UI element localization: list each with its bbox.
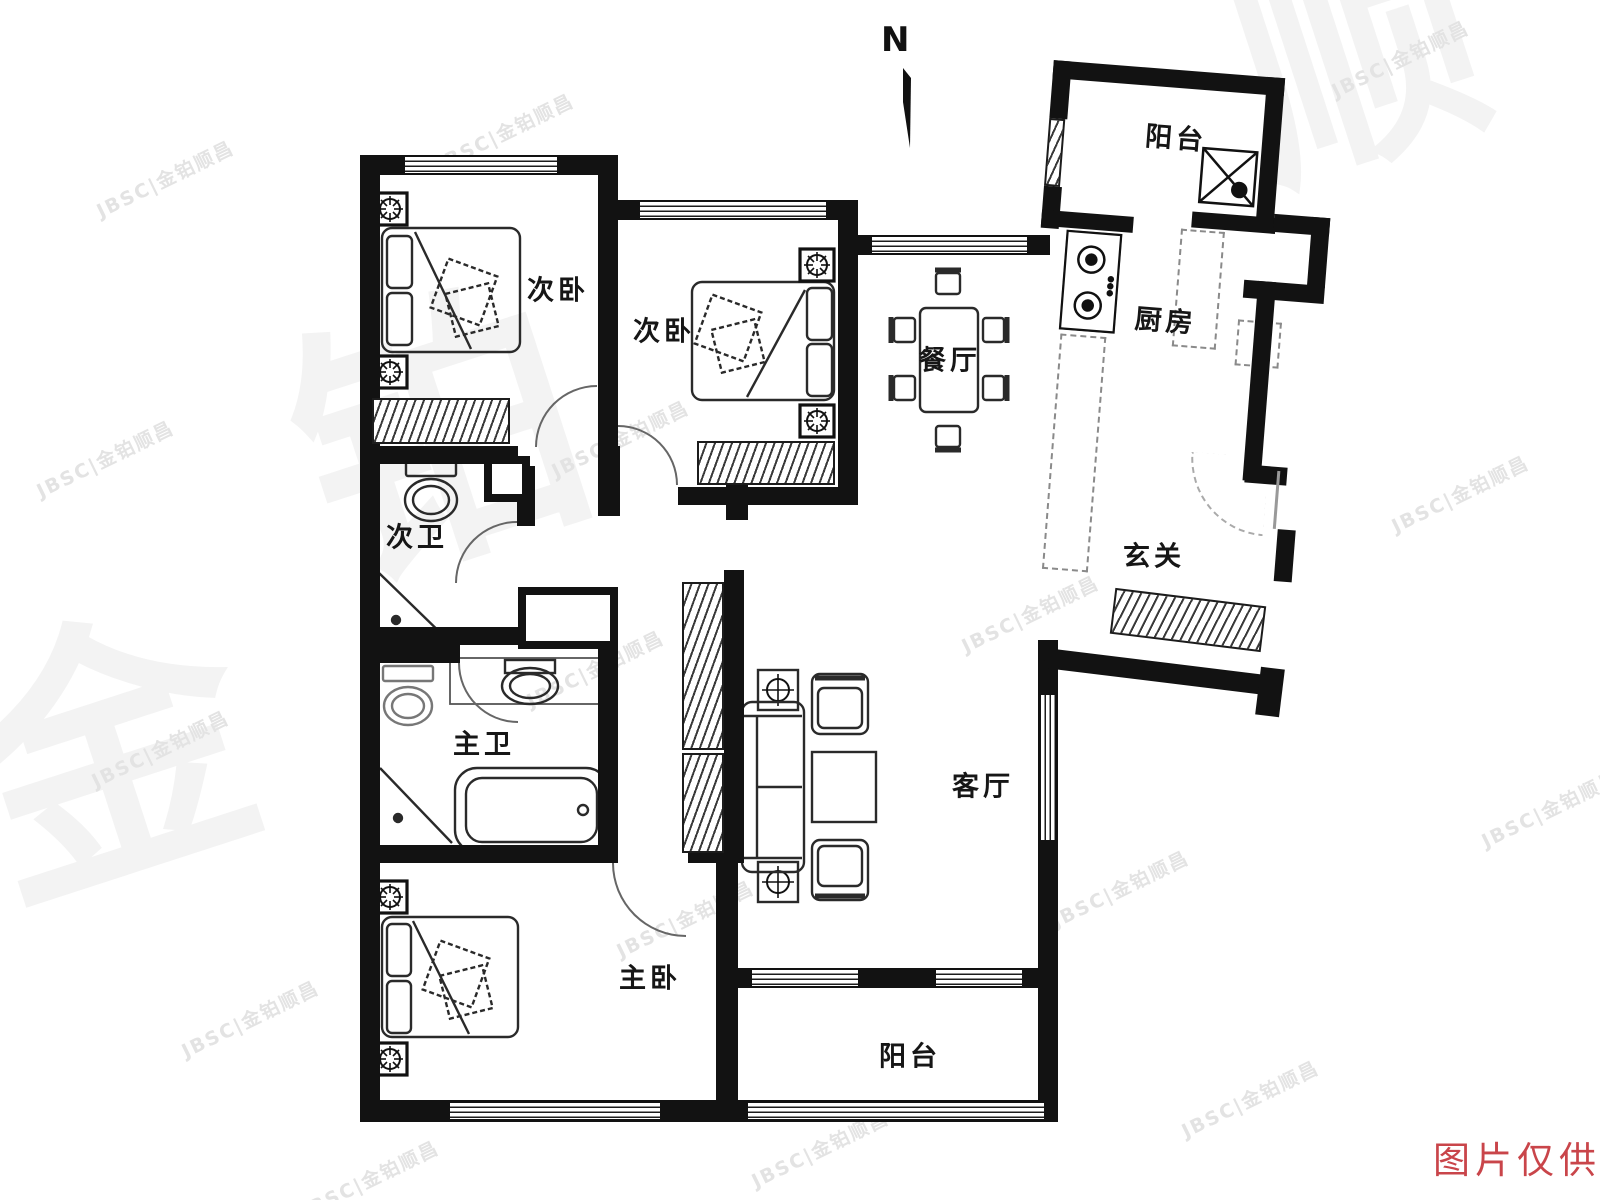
window — [450, 1103, 660, 1119]
floor-plan-canvas: 金 铂 顺 JBSC|金铂顺昌 JBSC|金铂顺昌 JBSC|金铂顺昌 JBSC… — [0, 0, 1600, 1200]
wall — [598, 645, 618, 863]
disclaimer-text: 图片仅供参考 — [1433, 1130, 1600, 1184]
room-label-bath-master: 主卫 — [453, 732, 515, 759]
room-label-balcony-north: 阳台 — [1144, 123, 1208, 155]
sofa-set-icon — [742, 670, 876, 902]
window — [405, 157, 557, 173]
sliding-door — [752, 970, 858, 986]
room-label-entry: 玄关 — [1123, 544, 1185, 571]
window — [1044, 118, 1065, 187]
shower-icon — [380, 768, 452, 843]
wall — [360, 845, 614, 863]
room-label-bath-second: 次卫 — [386, 525, 448, 552]
wall — [598, 446, 620, 516]
wall — [360, 627, 520, 645]
double-bed-icon — [382, 228, 520, 352]
wall — [1049, 60, 1071, 119]
wall — [724, 570, 744, 863]
wardrobe-icon — [372, 398, 510, 444]
kitchen-counter — [1042, 333, 1106, 572]
window — [872, 237, 1027, 253]
window — [1041, 695, 1055, 840]
wall — [1255, 77, 1285, 228]
double-bed-icon — [692, 282, 834, 400]
wall — [360, 645, 460, 663]
room-label-kitchen: 厨房 — [1134, 306, 1198, 338]
room-label-balcony-south: 阳台 — [879, 1044, 941, 1071]
double-bed-icon — [382, 917, 518, 1037]
toilet-icon — [383, 666, 433, 725]
window — [748, 1103, 1044, 1119]
nightstand-lamp-icon — [800, 249, 834, 281]
bathtub-icon — [455, 768, 608, 852]
window — [640, 202, 826, 218]
hall-closet-icon — [682, 753, 724, 853]
coffee-table-icon — [812, 752, 876, 822]
nightstand-lamp-icon — [800, 405, 834, 437]
room-label-bedroom-master: 主卧 — [619, 966, 681, 993]
wall — [716, 863, 738, 1103]
wardrobe-icon — [697, 441, 835, 485]
toilet-icon — [405, 460, 457, 521]
compass-label: N — [881, 20, 909, 60]
wall — [1052, 60, 1285, 96]
room-label-living: 客厅 — [952, 774, 1014, 801]
room-label-bedroom-second-1: 次卧 — [527, 278, 589, 305]
stove-icon — [1059, 230, 1123, 334]
hall-closet-icon — [682, 582, 724, 750]
north-arrow-icon — [903, 68, 911, 148]
washing-machine-icon — [1197, 146, 1259, 208]
wall — [1041, 210, 1134, 233]
room-label-dining: 餐厅 — [919, 348, 981, 375]
wall — [678, 487, 858, 505]
duct-shaft — [484, 456, 530, 502]
wall — [1243, 281, 1277, 482]
wall — [1274, 529, 1296, 582]
duct-shaft — [518, 587, 618, 649]
room-label-bedroom-second-2: 次卧 — [633, 319, 695, 346]
sliding-door — [936, 970, 1022, 986]
